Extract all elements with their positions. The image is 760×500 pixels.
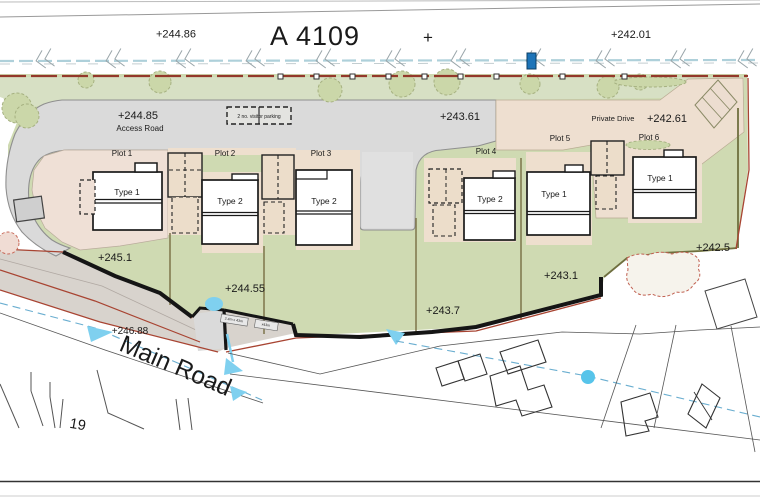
svg-text:Type 2: Type 2: [311, 196, 337, 206]
svg-text:Plot 3: Plot 3: [311, 149, 332, 158]
svg-text:19: 19: [68, 416, 87, 435]
svg-text:Type 1: Type 1: [647, 173, 673, 183]
svg-text:+243.7: +243.7: [426, 305, 460, 317]
svg-text:+: +: [423, 28, 433, 47]
svg-text:+244.85: +244.85: [118, 110, 158, 122]
svg-text:+242.01: +242.01: [611, 29, 651, 41]
svg-text:Type 2: Type 2: [217, 196, 243, 206]
svg-text:2 no. visitor parking: 2 no. visitor parking: [237, 114, 281, 120]
svg-text:Access Road: Access Road: [116, 124, 163, 133]
svg-text:Type 1: Type 1: [114, 187, 140, 197]
svg-text:+242.61: +242.61: [647, 113, 687, 125]
svg-text:Plot 5: Plot 5: [550, 134, 571, 143]
svg-text:+243.61: +243.61: [440, 111, 480, 123]
svg-text:A 4109: A 4109: [270, 21, 360, 51]
svg-text:+245.1: +245.1: [98, 252, 132, 264]
svg-text:Private Drive: Private Drive: [592, 114, 635, 123]
svg-text:Plot 4: Plot 4: [476, 147, 497, 156]
svg-text:Type 1: Type 1: [541, 189, 567, 199]
svg-text:+244.86: +244.86: [156, 29, 196, 41]
svg-text:+242.5: +242.5: [696, 242, 730, 254]
svg-text:Type 2: Type 2: [477, 194, 503, 204]
svg-text:+243.1: +243.1: [544, 270, 578, 282]
svg-text:Plot 6: Plot 6: [639, 133, 660, 142]
svg-text:+244.55: +244.55: [225, 283, 265, 295]
svg-text:Plot 2: Plot 2: [215, 149, 236, 158]
svg-text:Plot 1: Plot 1: [112, 149, 133, 158]
